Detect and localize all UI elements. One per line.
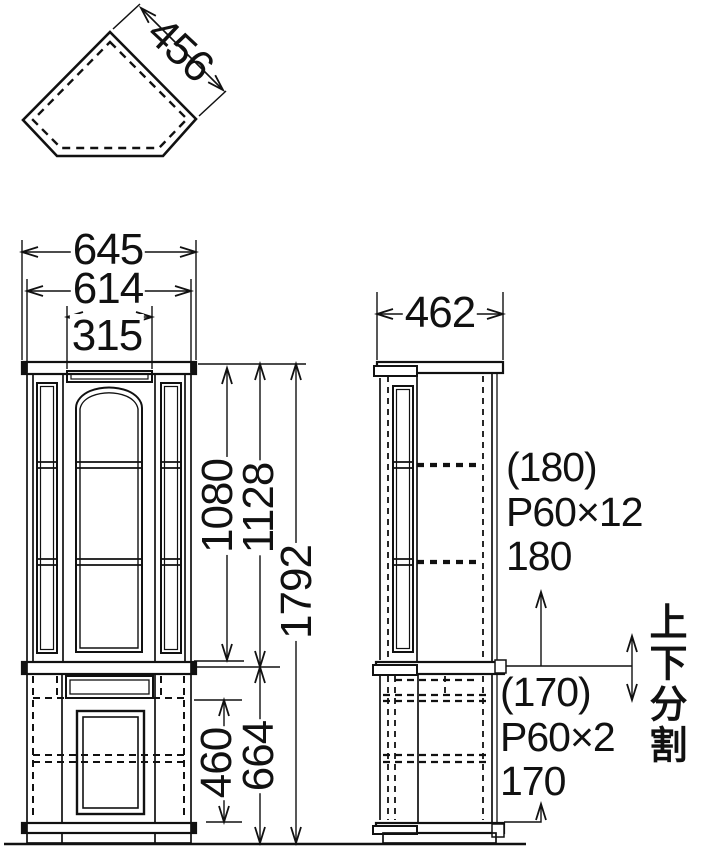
arch-window-inner xyxy=(80,393,138,648)
lower-shelf-bottom-space: 170 xyxy=(500,761,565,802)
upper-shelf-pitch: P60×12 xyxy=(506,492,643,533)
front-view xyxy=(22,362,196,843)
lower-shelf-top-space: (170) xyxy=(500,672,591,713)
upper-shelf-top-space: (180) xyxy=(506,447,597,488)
dim-label-upper-section-height: 1128 xyxy=(237,461,281,556)
dim-label-lower-interior-height: 460 xyxy=(195,726,239,800)
side-view xyxy=(373,362,506,843)
dim-label-total-height: 1792 xyxy=(275,543,319,641)
arch-window-outer xyxy=(76,388,142,653)
split-note-label: 上下分割 xyxy=(646,602,684,766)
lower-shelf-pitch: P60×2 xyxy=(500,717,615,758)
technical-drawing: 456 645 614 315 1080 1128 1792 460 664 4… xyxy=(0,0,710,850)
lower-pitch-leader xyxy=(504,804,541,822)
dim-label-lower-section-height: 664 xyxy=(237,719,281,793)
dim-label-center-width: 315 xyxy=(70,314,144,358)
dim-label-body-width: 614 xyxy=(71,267,145,311)
upper-shelf-bottom-space: 180 xyxy=(506,536,571,577)
dim-label-side-depth: 462 xyxy=(403,291,477,335)
